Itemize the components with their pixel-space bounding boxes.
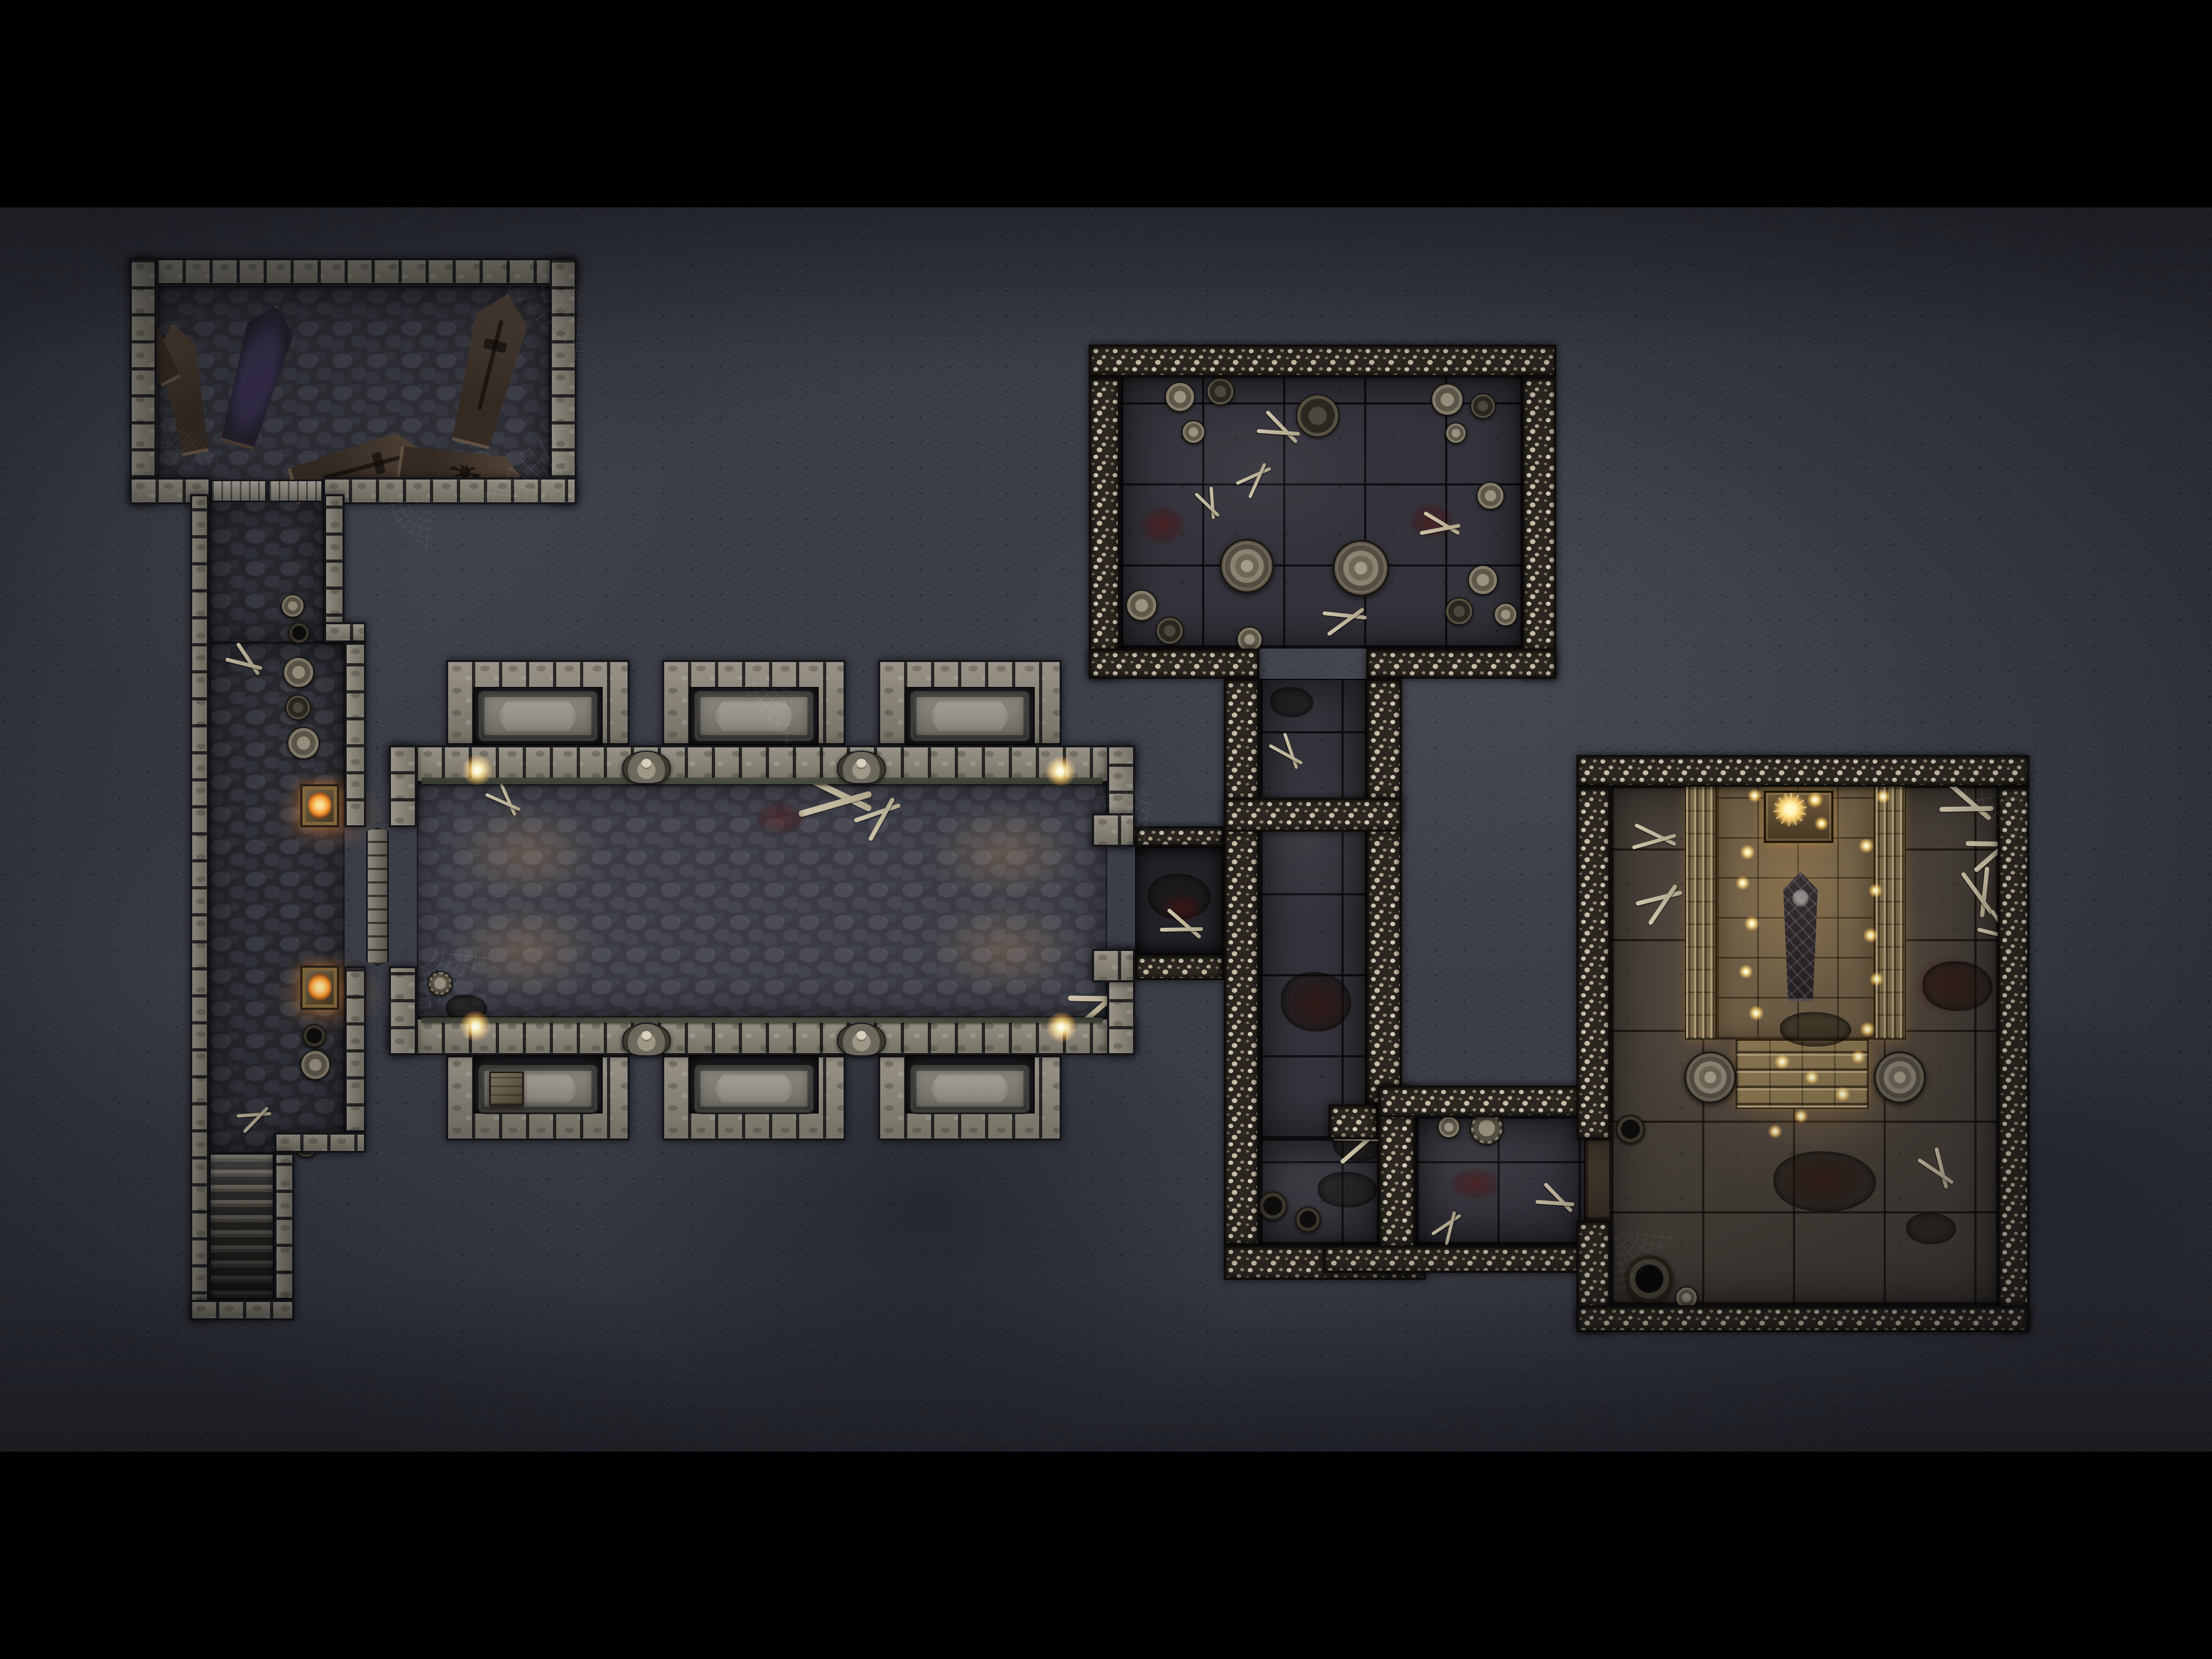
candle bbox=[1835, 1087, 1850, 1102]
candle bbox=[1860, 1022, 1875, 1037]
shield bbox=[1156, 617, 1184, 645]
hall-east-pillar bbox=[1092, 949, 1135, 982]
corridor-wall-west bbox=[190, 494, 209, 1320]
shield bbox=[1182, 420, 1205, 444]
sarcophagus bbox=[478, 691, 597, 741]
stair-shaft-wall-south bbox=[190, 1300, 294, 1320]
crypt-doorway-floor bbox=[1585, 1139, 1610, 1220]
blood-stain bbox=[1131, 500, 1193, 551]
staircase-down bbox=[209, 1153, 274, 1300]
skull-pile bbox=[1270, 687, 1313, 717]
hall-wall-south bbox=[389, 1017, 1135, 1055]
shield bbox=[300, 1050, 331, 1080]
candle bbox=[1768, 1124, 1782, 1138]
skull-pile bbox=[1906, 1213, 1956, 1244]
wall-torch bbox=[1047, 1012, 1077, 1042]
wall-torch bbox=[462, 755, 493, 785]
bone-corridor-wall-west bbox=[1224, 679, 1259, 1245]
southwest-room-wall-north bbox=[1328, 1104, 1378, 1139]
candle bbox=[1740, 845, 1755, 860]
skull-ornament bbox=[837, 1023, 886, 1056]
shield bbox=[1470, 393, 1496, 419]
hall-wall-west bbox=[389, 745, 417, 827]
ossuary-wall-east bbox=[1522, 377, 1556, 679]
shield bbox=[1165, 382, 1195, 412]
shield bbox=[1494, 603, 1518, 626]
candle bbox=[1739, 965, 1753, 979]
shield bbox=[283, 657, 314, 688]
candle bbox=[1794, 1109, 1808, 1123]
shield bbox=[281, 594, 305, 618]
shield bbox=[1126, 590, 1157, 621]
ossuary-wall-west bbox=[1089, 377, 1120, 679]
blood-stain bbox=[745, 794, 815, 842]
gear-wheel bbox=[285, 694, 311, 720]
ossuary-wall-south bbox=[1366, 649, 1556, 679]
sarcophagus bbox=[911, 1065, 1029, 1112]
shield bbox=[1431, 383, 1464, 416]
torch-light bbox=[417, 880, 633, 1017]
skull-pile bbox=[1923, 961, 1993, 1011]
corridor-wall-east bbox=[324, 494, 345, 643]
southeast-room-wall-north bbox=[1378, 1085, 1609, 1117]
glowing-relic bbox=[1773, 793, 1807, 826]
bone-corridor-wall-east bbox=[1366, 679, 1402, 1104]
blood-stain bbox=[1440, 1162, 1510, 1205]
coffin-room-wall-west bbox=[130, 258, 157, 504]
shield bbox=[1468, 565, 1498, 595]
passage-door bbox=[366, 827, 389, 966]
candle bbox=[1859, 838, 1874, 853]
ossuary-wall-north bbox=[1089, 345, 1556, 377]
stair-shaft-wall-east bbox=[274, 1153, 294, 1300]
letterbox-bottom bbox=[0, 1452, 2212, 1659]
shield bbox=[1445, 422, 1467, 444]
sarcophagus bbox=[694, 1065, 813, 1112]
wall-torch bbox=[1046, 756, 1076, 786]
hall-ledge-south bbox=[421, 1017, 1103, 1023]
candle bbox=[1863, 928, 1878, 943]
skull-pile bbox=[1281, 972, 1351, 1031]
bone-medallion bbox=[1333, 540, 1389, 596]
candle bbox=[1807, 792, 1823, 808]
west-corridor-floor-upper bbox=[209, 494, 324, 643]
double-door-west-leaf bbox=[211, 480, 267, 502]
pedestal bbox=[1874, 1051, 1926, 1103]
pot bbox=[1258, 1191, 1287, 1220]
pot bbox=[302, 1024, 326, 1048]
skull-pile bbox=[1780, 1012, 1851, 1047]
brazier bbox=[300, 966, 339, 1010]
corridor-wall-south bbox=[274, 1132, 366, 1153]
bone-medallion bbox=[1220, 539, 1274, 593]
wall-torch bbox=[460, 1011, 490, 1041]
candle bbox=[1869, 884, 1883, 898]
candle bbox=[1748, 788, 1762, 802]
shield bbox=[287, 727, 320, 759]
dark-medallion bbox=[1296, 394, 1339, 437]
dais-steps-east bbox=[1874, 786, 1906, 1040]
pedestal bbox=[1684, 1051, 1736, 1103]
crypt-battle-map bbox=[0, 0, 2212, 1659]
shield bbox=[1476, 482, 1505, 510]
bone-corridor-cross-wall bbox=[1224, 798, 1402, 832]
candle bbox=[1744, 916, 1759, 931]
candle bbox=[1851, 1050, 1865, 1064]
hall-wall-west bbox=[389, 966, 417, 1055]
crypt-wall-west bbox=[1576, 787, 1610, 1139]
candle bbox=[1876, 790, 1890, 804]
candle bbox=[1749, 1006, 1764, 1021]
pot bbox=[1616, 1115, 1645, 1144]
shield bbox=[1445, 597, 1473, 625]
pot bbox=[1295, 1206, 1321, 1232]
crypt-wall-south bbox=[1576, 1305, 2029, 1332]
ossuary-wall-south bbox=[1089, 649, 1259, 679]
skull-pile bbox=[1318, 1172, 1377, 1208]
candle bbox=[1775, 1054, 1790, 1069]
coffin-room-wall-north bbox=[130, 258, 577, 285]
crypt-wall-north bbox=[1576, 755, 2029, 787]
sarcophagus bbox=[911, 691, 1029, 741]
letterbox-top bbox=[0, 0, 2212, 207]
pot bbox=[288, 622, 310, 644]
candle bbox=[1805, 1070, 1819, 1084]
corridor-wall-east bbox=[345, 966, 366, 1132]
double-door-east-leaf bbox=[268, 480, 323, 502]
crypt-wall-east bbox=[1998, 787, 2029, 1332]
skull-pile bbox=[1773, 1151, 1876, 1212]
shield bbox=[1206, 377, 1235, 406]
stone-crate bbox=[489, 1071, 524, 1106]
skull-ornament bbox=[622, 1023, 671, 1056]
skull-ornament bbox=[837, 751, 886, 784]
skull-ornament bbox=[622, 751, 671, 784]
candle bbox=[1815, 817, 1829, 831]
candle bbox=[1736, 876, 1750, 890]
shield bbox=[1438, 1116, 1460, 1138]
corridor-wall-east bbox=[345, 643, 366, 827]
brazier bbox=[300, 784, 339, 827]
candle bbox=[1870, 972, 1884, 986]
corridor-wall-jog bbox=[324, 622, 366, 643]
dais-steps-west bbox=[1685, 786, 1716, 1040]
hall-ledge-north bbox=[421, 778, 1103, 784]
southeast-room-wall-south bbox=[1323, 1245, 1609, 1273]
niche-wall-south bbox=[1135, 954, 1224, 980]
